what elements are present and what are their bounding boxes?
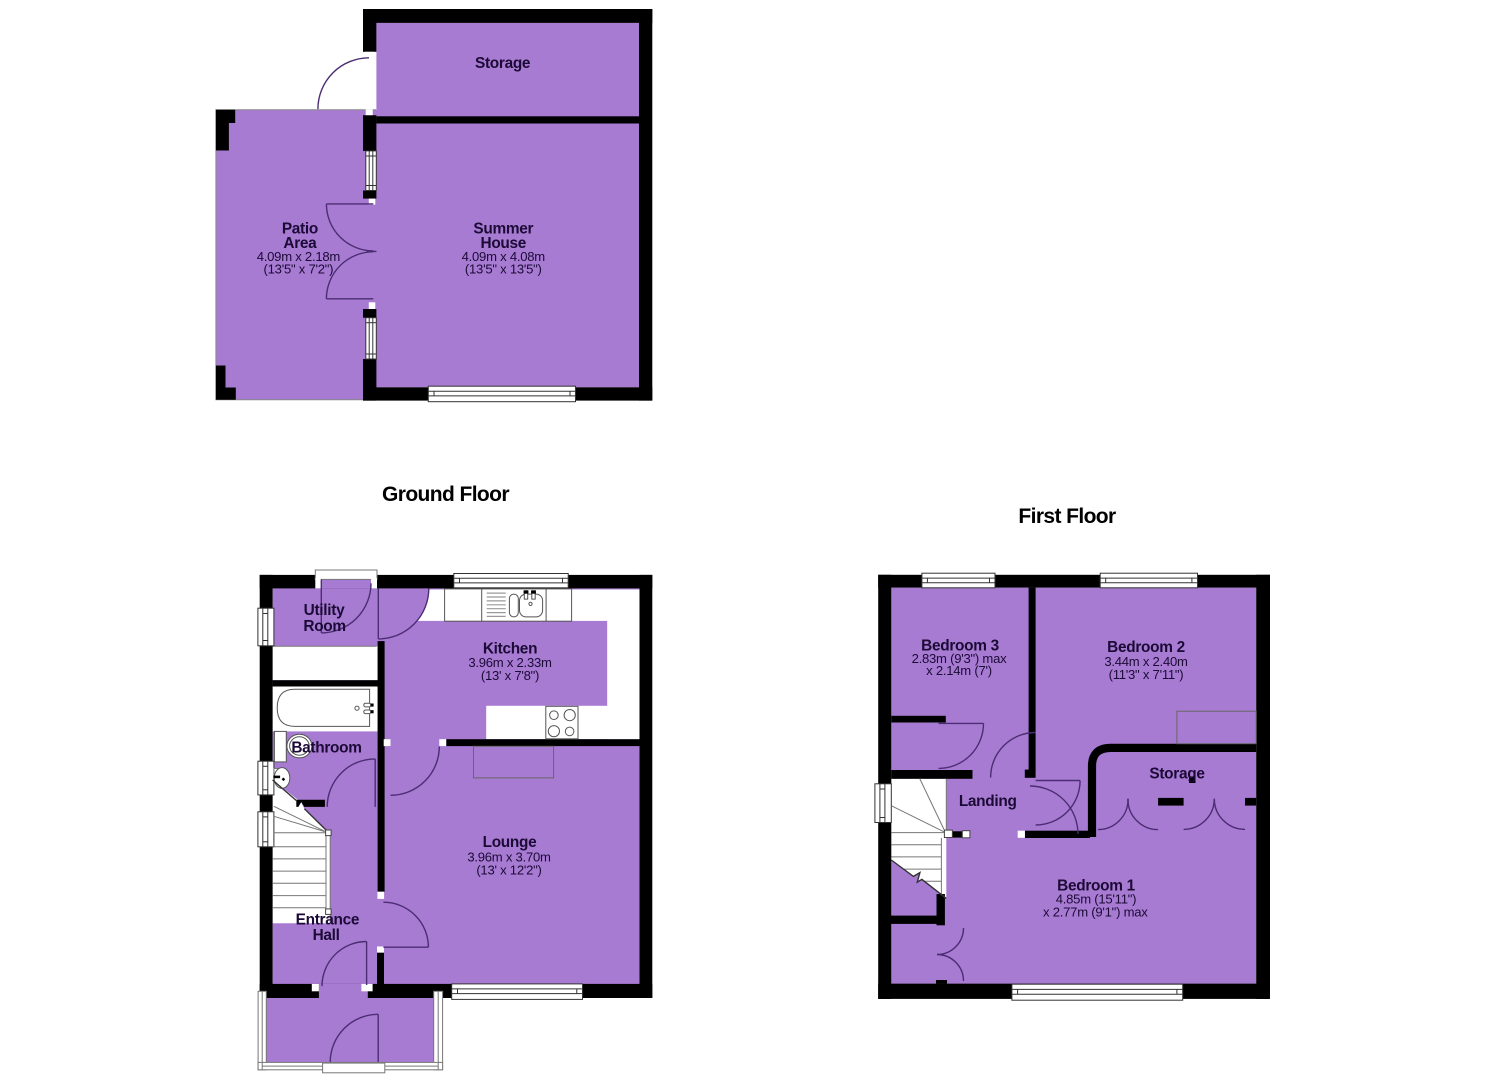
- svg-text:Ground Floor: Ground Floor: [382, 483, 509, 506]
- svg-text:(13'5" x 13'5"): (13'5" x 13'5"): [465, 262, 542, 277]
- svg-text:Storage: Storage: [475, 55, 531, 72]
- svg-text:(13'5" x 7'2"): (13'5" x 7'2"): [264, 262, 334, 277]
- svg-text:Bathroom: Bathroom: [291, 740, 361, 757]
- svg-text:x 2.14m (7'): x 2.14m (7'): [926, 663, 992, 678]
- svg-text:Lounge: Lounge: [483, 834, 538, 851]
- svg-text:Landing: Landing: [959, 793, 1017, 810]
- svg-text:Hall: Hall: [313, 927, 340, 944]
- svg-text:Storage: Storage: [1149, 766, 1205, 783]
- svg-text:(13' x 12'2"): (13' x 12'2"): [476, 863, 541, 878]
- svg-text:(11'3" x 7'11"): (11'3" x 7'11"): [1109, 667, 1184, 682]
- svg-text:(13' x 7'8"): (13' x 7'8"): [481, 668, 539, 683]
- svg-text:First Floor: First Floor: [1018, 505, 1116, 528]
- svg-text:x 2.77m (9'1") max: x 2.77m (9'1") max: [1043, 905, 1148, 920]
- svg-text:Room: Room: [303, 618, 345, 635]
- svg-text:Utility: Utility: [304, 602, 345, 619]
